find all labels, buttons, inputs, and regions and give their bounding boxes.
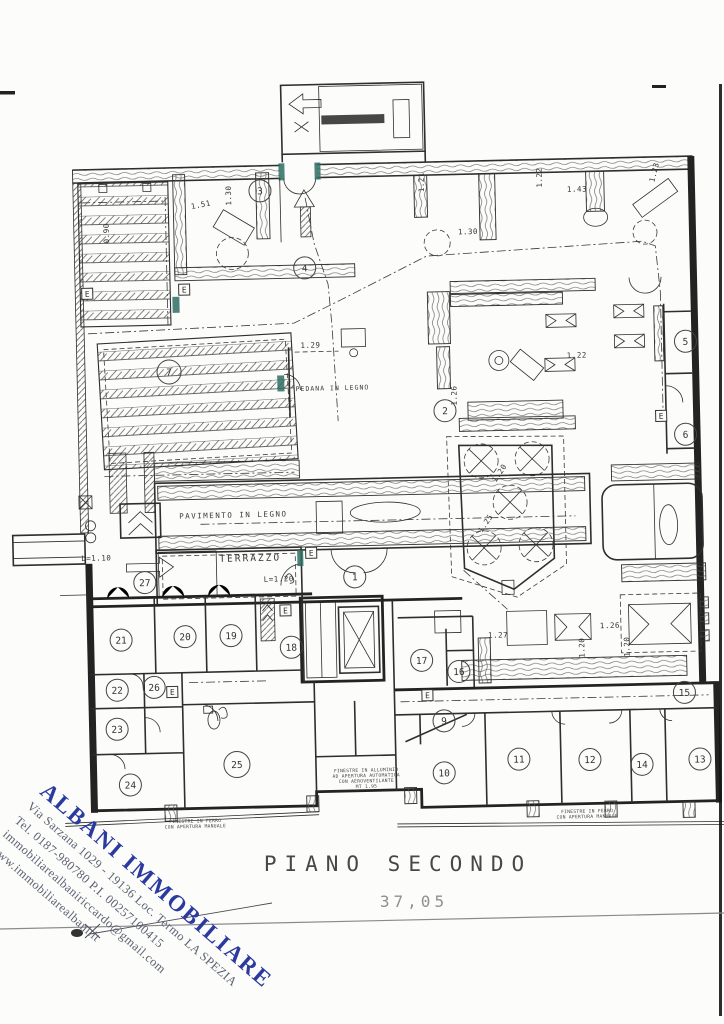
scan-mark — [652, 85, 666, 88]
room-number: 17 — [416, 656, 428, 667]
footer-rule — [0, 913, 724, 929]
wood-floor-hall — [154, 453, 591, 553]
electrical-marker-letter: E — [309, 549, 314, 558]
room-number: 1 — [352, 572, 358, 583]
hatched-roof-area-north — [78, 182, 171, 329]
room-number: 25 — [231, 760, 243, 771]
lounge-sofa — [601, 463, 706, 582]
floor-label: PEDANA IN LEGNO — [296, 383, 370, 393]
door-jamb — [314, 162, 320, 179]
left-balcony-protrusion — [13, 534, 86, 566]
floor-area-value: 37,05 — [52, 892, 724, 911]
scan-blob — [71, 929, 83, 937]
dimension-label: 1.22 — [567, 350, 587, 359]
stair-direction-arrow-icon — [289, 93, 321, 114]
room-number: 4 — [302, 263, 308, 274]
electrical-marker-letter: E — [170, 688, 175, 697]
floor-label: TERRAZZO — [219, 552, 281, 564]
dimension-label: L=1.10 — [81, 553, 111, 563]
room-number: 16 — [453, 667, 465, 678]
dimension-label: 1.30 — [224, 185, 233, 205]
slanted-table — [633, 178, 678, 217]
dimension-label: 1.30 — [458, 227, 478, 236]
room-number: 3 — [257, 186, 263, 197]
stair-elevator-core — [299, 548, 390, 682]
electrical-marker-letter: E — [283, 606, 288, 615]
floor-title: PIANO SECONDO — [36, 852, 724, 876]
dimension-label: 1.51 — [190, 198, 211, 211]
scan-edge-bar — [719, 84, 722, 1016]
room-number: 7 — [166, 367, 172, 378]
door-jamb — [172, 297, 179, 313]
dimension-label: 0.90 — [102, 223, 111, 243]
floor-label: PAVIMENTO IN LEGNO — [179, 509, 287, 520]
scanned-floorplan-page: 1234567910111213141516171819202122232425… — [0, 0, 724, 1024]
dimension-label: 1.27 — [488, 630, 508, 639]
room-number: 12 — [584, 755, 596, 766]
room-number: 21 — [115, 636, 127, 647]
trestle-tables — [544, 304, 645, 371]
porch-piers — [62, 673, 724, 840]
room-number: 19 — [225, 631, 237, 642]
electrical-marker-letter: E — [85, 290, 90, 299]
dimension-label: 1.20 — [622, 637, 631, 657]
right-small-rooms — [629, 276, 694, 454]
door-jamb — [297, 550, 303, 566]
dimension-label: 1.26 — [449, 385, 458, 405]
room-number: 18 — [285, 643, 297, 654]
handwritten-x-mark — [85, 924, 100, 938]
flow-arrow-shaft — [300, 207, 311, 237]
room-number: 27 — [139, 578, 151, 589]
hatched-roof-area-west — [97, 333, 298, 470]
dimension-label: 1.26 — [600, 621, 620, 630]
room-number: 9 — [441, 716, 447, 727]
room-number: 6 — [683, 430, 689, 441]
door-jamb — [278, 163, 284, 180]
plan-drawing: 1234567910111213141516171819202122232425… — [3, 76, 724, 841]
room-number: 11 — [513, 755, 525, 766]
flow-arrow-head — [294, 190, 314, 207]
desk — [213, 210, 254, 246]
room-number: 24 — [125, 780, 137, 791]
scan-mark — [0, 91, 15, 95]
electrical-marker-letter: E — [425, 691, 430, 700]
room-number: 15 — [679, 688, 691, 699]
dimension-label: 1.29 — [300, 341, 320, 350]
room-number: 10 — [438, 768, 450, 779]
room-number: 5 — [683, 337, 689, 348]
door-jamb — [277, 375, 284, 391]
room-number: 23 — [111, 725, 123, 736]
hall-furniture — [427, 277, 646, 432]
room-number: 26 — [148, 683, 160, 694]
dimension-label: 1.22 — [534, 167, 543, 187]
electrical-marker-letter: E — [182, 286, 187, 295]
terrace-arrow-icon — [126, 557, 173, 578]
window-note-line: MT 1.95 — [356, 784, 378, 790]
dimension-label: L=1.20 — [264, 574, 294, 584]
electrical-marker-letter: E — [659, 412, 664, 421]
room-number: 14 — [636, 760, 648, 771]
dimension-label: 1.20 — [577, 638, 586, 658]
external-staircase — [281, 82, 426, 165]
room-number: 2 — [442, 406, 448, 417]
dimension-label: 1.43 — [567, 184, 587, 193]
room-number: 22 — [111, 686, 123, 697]
room-number: 20 — [179, 632, 191, 643]
room-number: 13 — [694, 754, 706, 765]
dimension-label: 1.21 — [417, 172, 426, 192]
